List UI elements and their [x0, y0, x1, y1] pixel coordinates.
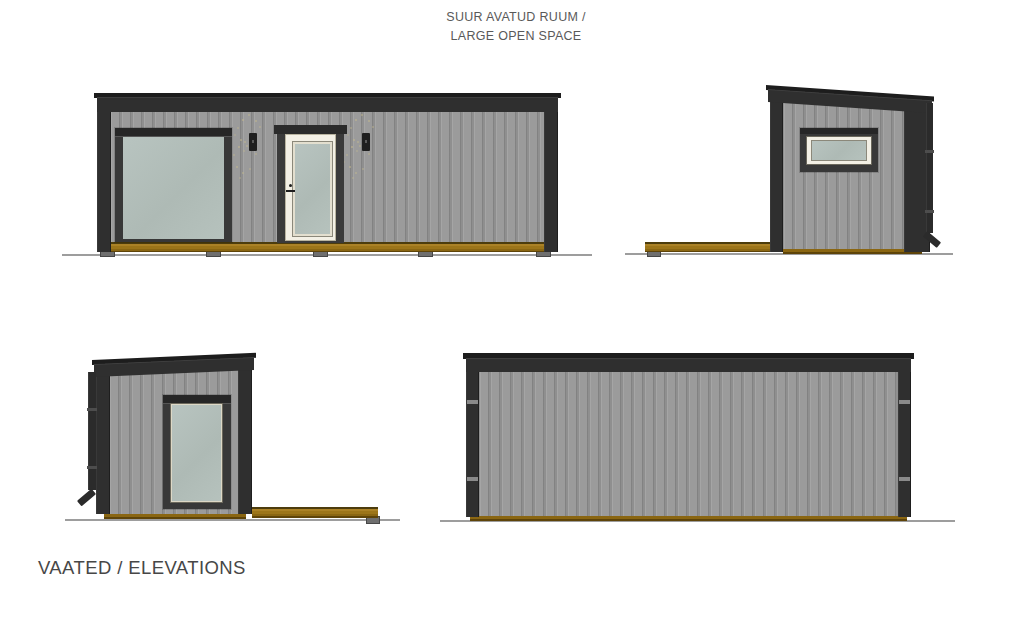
door-lock [289, 184, 292, 187]
deck-base-strip [783, 249, 922, 254]
corner-trim [770, 101, 783, 252]
downspout [926, 103, 933, 233]
drawing-title-line1: SUUR AVATUD RUUM / [366, 8, 666, 27]
downspout-bracket [87, 408, 97, 411]
door-glass [293, 142, 332, 236]
downspout-bracket [899, 400, 910, 404]
downspout-bracket [87, 466, 97, 469]
corner-downspout [898, 372, 911, 517]
roof-fascia [97, 97, 558, 112]
sheet-title: VAATED / ELEVATIONS [38, 557, 246, 579]
wooden-deck [101, 242, 549, 252]
lamp-dot [252, 140, 254, 143]
window-header-line [163, 403, 231, 404]
window-header [800, 128, 878, 134]
window-glass [812, 141, 866, 160]
window-header [163, 395, 231, 403]
drawing-title-line2: LARGE OPEN SPACE [366, 27, 666, 46]
roof-fascia [466, 358, 911, 372]
deck-base-strip [470, 516, 907, 521]
lamp-light-sparkle [247, 158, 249, 160]
corner-trim [97, 112, 111, 252]
corner-trim [238, 368, 252, 514]
tall-window-frame [163, 395, 231, 509]
lamp-dot [365, 140, 367, 143]
wall-siding [466, 372, 911, 517]
lamp-light-sparkle [360, 158, 362, 160]
large-window-frame [115, 128, 232, 242]
window-glass [172, 405, 221, 501]
ground-line [65, 519, 400, 521]
downspout-kickout [77, 489, 96, 507]
elevation-drawing-sheet: SUUR AVATUD RUUM / LARGE OPEN SPACE VAAT… [0, 0, 1024, 617]
corner-downspout [466, 372, 479, 517]
wooden-deck [645, 242, 773, 252]
corner-trim [96, 370, 110, 514]
door-handle [286, 190, 295, 192]
wooden-deck [252, 507, 378, 518]
downspout-bracket [899, 477, 910, 481]
window-header [115, 128, 232, 136]
downspout [88, 372, 96, 490]
window-glass [123, 137, 224, 239]
downspout-bracket [467, 477, 478, 481]
small-window-frame [800, 128, 878, 172]
corner-trim [544, 112, 558, 252]
deck-base-strip [104, 514, 246, 519]
downspout-bracket [925, 150, 934, 153]
drawing-title: SUUR AVATUD RUUM / LARGE OPEN SPACE [366, 8, 666, 46]
downspout-bracket [467, 400, 478, 404]
downspout-bracket [925, 210, 934, 213]
door-header [274, 125, 347, 134]
